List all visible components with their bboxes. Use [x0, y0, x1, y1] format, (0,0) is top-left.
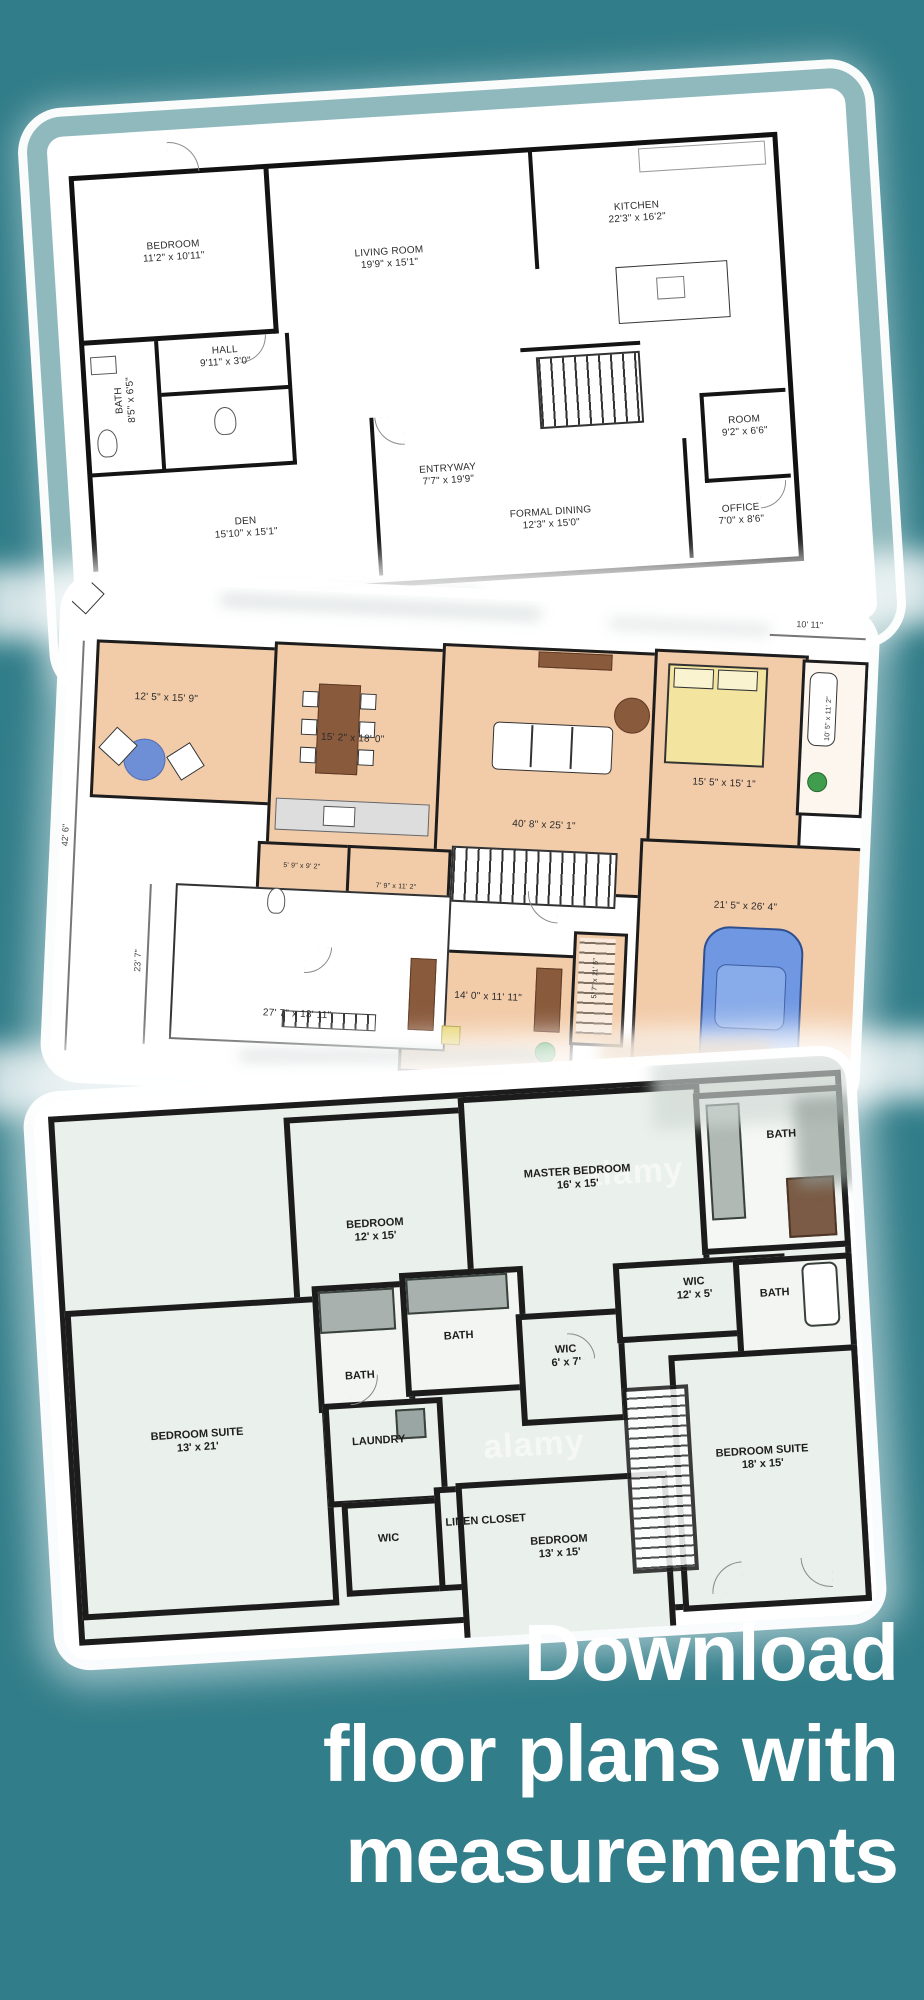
dimension-line — [143, 884, 152, 1044]
floor-plan-card-3: alamy alamy BEDROOM 12' x 15' MASTER BED… — [32, 1054, 878, 1661]
dimension-line — [770, 634, 866, 640]
sink-icon — [656, 276, 685, 300]
pillow-icon — [717, 670, 758, 692]
staircase — [536, 351, 644, 429]
blurred-plan-fragment — [221, 595, 541, 620]
plan3-label-wic-center: WIC 6' x 7' — [525, 1341, 606, 1372]
chair-icon — [302, 691, 319, 708]
door-arc — [527, 891, 559, 923]
chair-icon — [300, 747, 317, 764]
vanity-icon — [405, 1273, 509, 1315]
door-arc — [167, 140, 200, 173]
chair-icon — [357, 749, 374, 766]
plan3-laundry — [322, 1397, 448, 1508]
dimension-23-7: 23' 7" — [132, 949, 143, 972]
pillow-icon — [673, 668, 714, 690]
headline: Download floor plans with measurements — [18, 1602, 898, 1905]
sofa-icon — [491, 721, 613, 774]
toilet-icon — [267, 887, 286, 914]
headline-line-2: floor plans with — [18, 1703, 898, 1804]
stove-icon — [323, 806, 356, 827]
headline-line-1: Download — [18, 1602, 898, 1703]
blurred-plan-fragment — [610, 619, 770, 635]
dimension-10-11: 10' 11" — [796, 619, 823, 630]
staircase — [622, 1384, 699, 1574]
blurred-plan-fragment — [240, 1052, 540, 1061]
dimension-42-6: 42' 6" — [60, 824, 71, 847]
headline-line-3: measurements — [18, 1804, 898, 1905]
watermark-text: alamy — [482, 1422, 586, 1467]
plan3-suite-left — [65, 1296, 340, 1621]
vanity-icon — [318, 1288, 396, 1334]
blurred-plan-fragment — [793, 1094, 858, 1187]
plan2-room-a — [90, 639, 281, 805]
floor-plan-card-2: 42' 6" 23' 7" 10' 11" — [49, 580, 870, 1108]
app-screenshot: BEDROOM 11'2" x 10'11" LIVING ROOM 19'9"… — [0, 0, 924, 2000]
chair-icon — [360, 693, 377, 710]
console-icon — [538, 651, 613, 670]
dining-table-icon — [315, 683, 361, 775]
plan3-suite-right — [668, 1344, 872, 1612]
car-roof — [714, 964, 787, 1031]
